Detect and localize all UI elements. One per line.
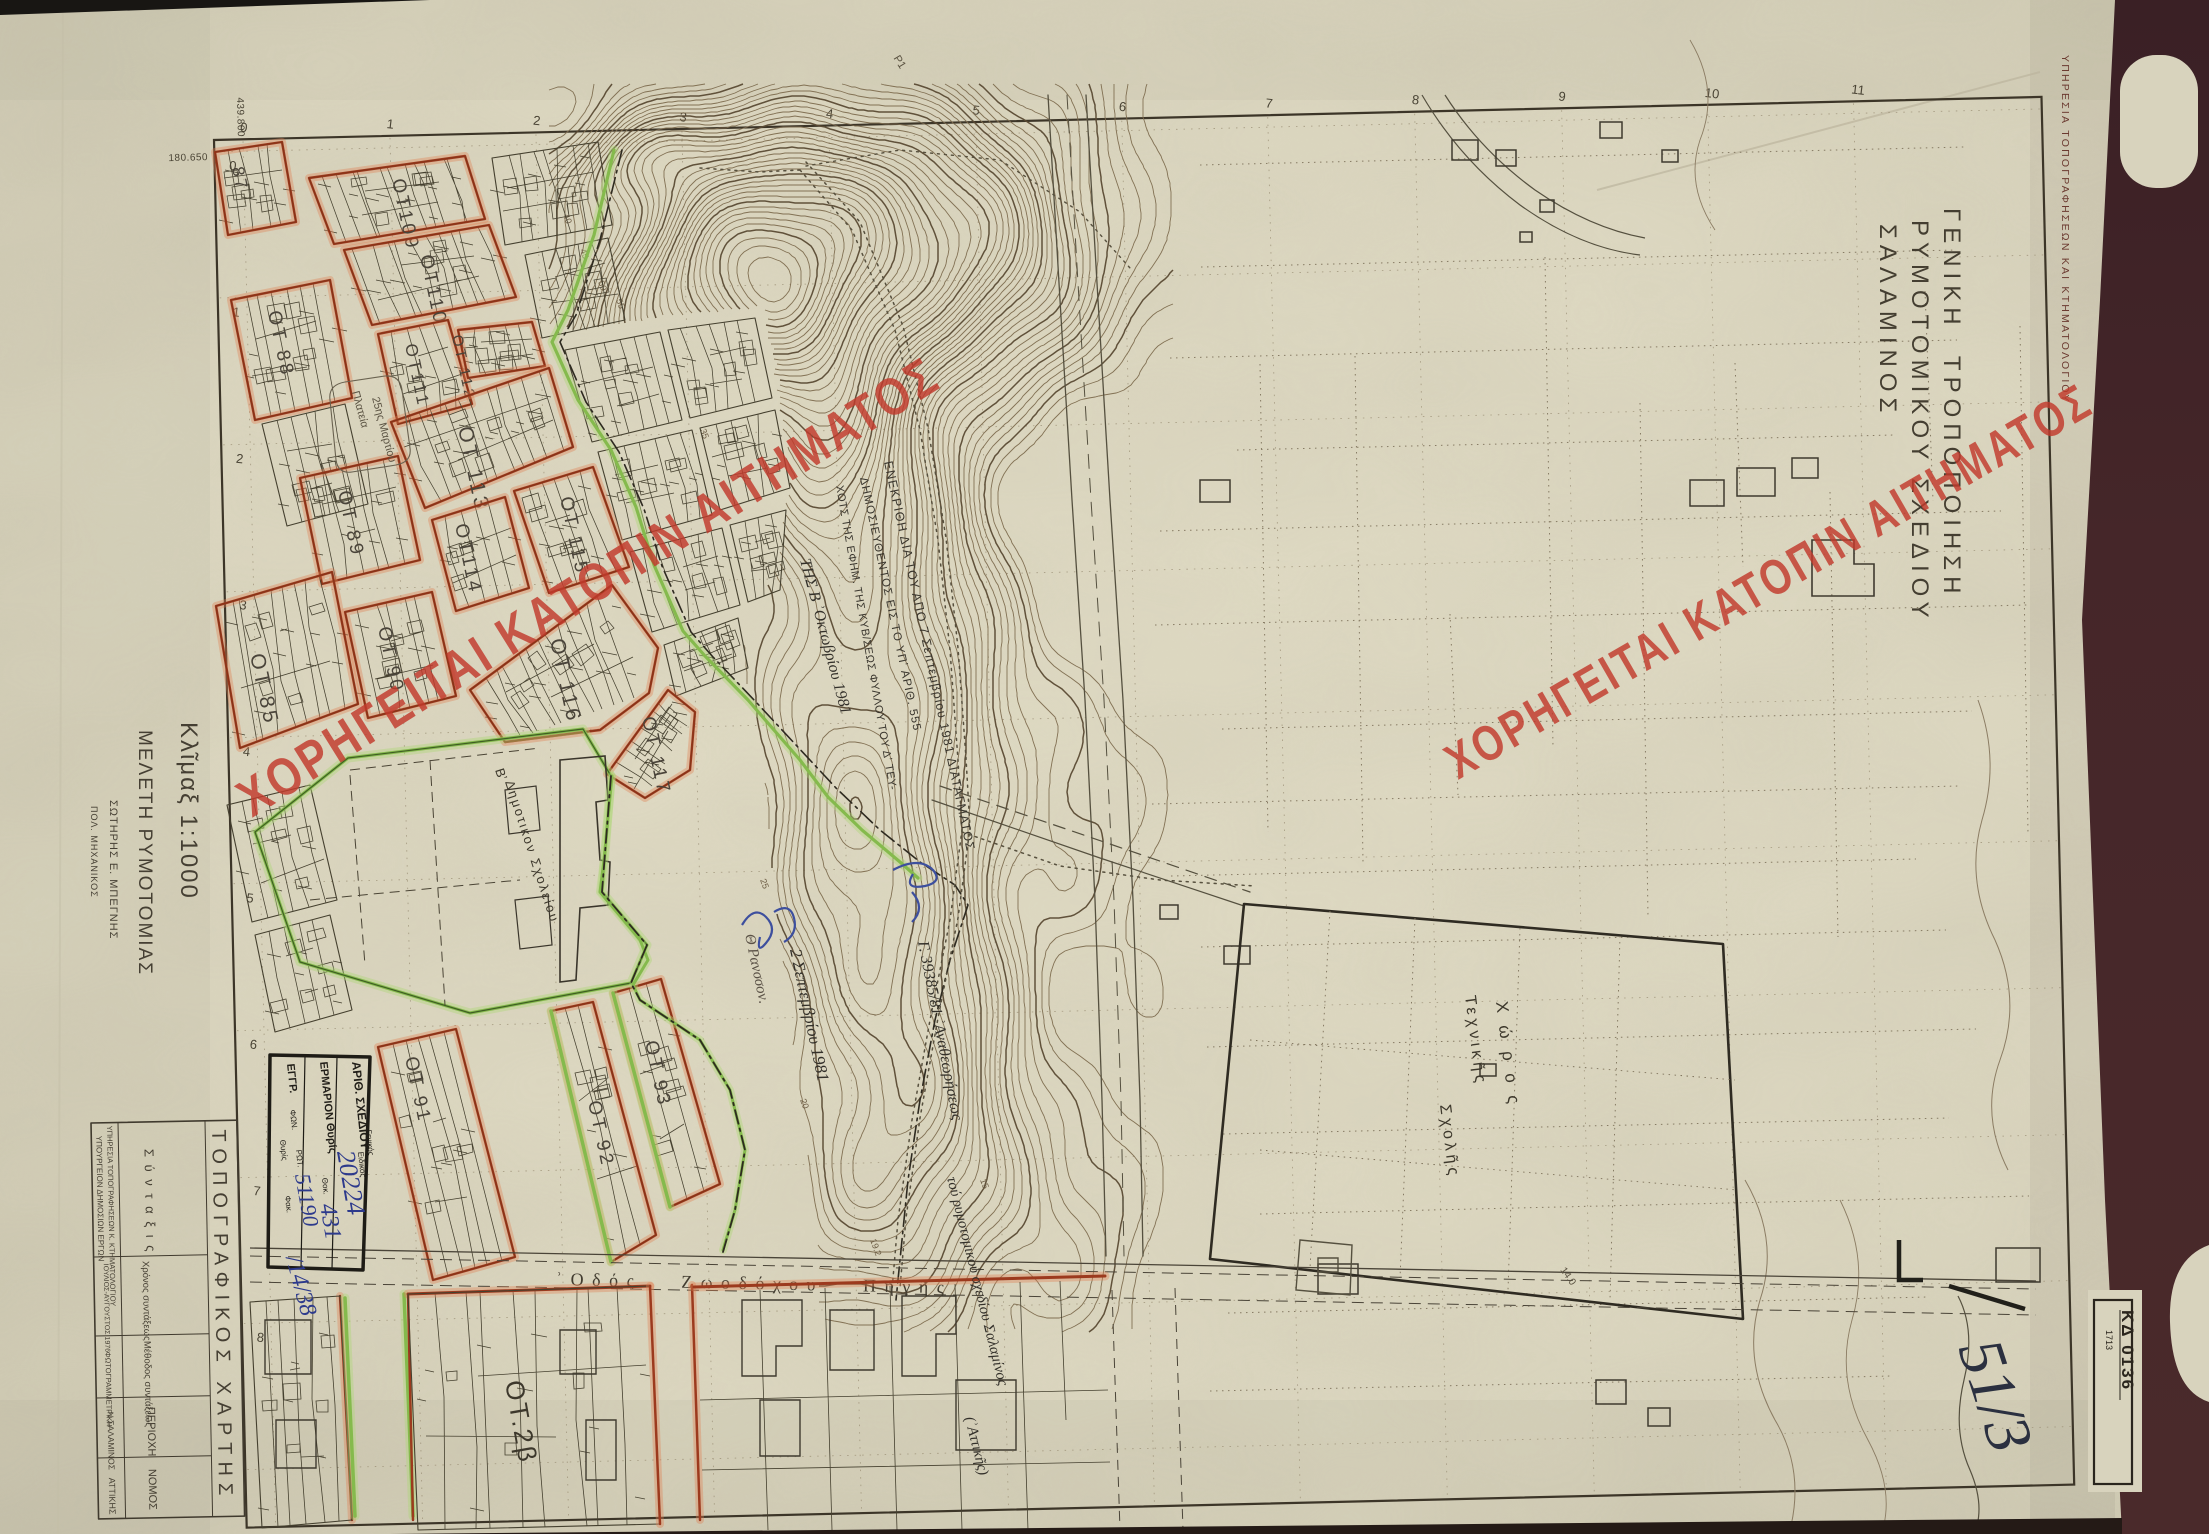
svg-text:ΠΕΡΙΟΧΗ: ΠΕΡΙΟΧΗ: [144, 1407, 157, 1457]
svg-text:ΠΟΛ. ΜΗΧΑΝΙΚΟΣ: ΠΟΛ. ΜΗΧΑΝΙΚΟΣ: [89, 806, 99, 898]
svg-text:ΣΩΤΗΡΗΣ Ε. ΜΠΕΓΝΗΣ: ΣΩΤΗΡΗΣ Ε. ΜΠΕΓΝΗΣ: [107, 800, 119, 939]
svg-text:Χρόνος συντάξεως: Χρόνος συντάξεως: [140, 1261, 153, 1341]
svg-text:ΡΥΜΟΤΟΜΙΚΟΥ ΣΧΕΔΙΟΥ: ΡΥΜΟΤΟΜΙΚΟΥ ΣΧΕΔΙΟΥ: [1906, 220, 1933, 624]
svg-text:Κλῖμαξ 1:1000: Κλῖμαξ 1:1000: [175, 722, 202, 900]
svg-text:11: 11: [1851, 82, 1866, 98]
svg-text:ΡΩΤ.: ΡΩΤ.: [294, 1149, 305, 1167]
svg-text:Θοκ.: Θοκ.: [320, 1177, 331, 1195]
svg-text:ΜΕΛΕΤΗ ΡΥΜΟΤΟΜΙΑΣ: ΜΕΛΕΤΗ ΡΥΜΟΤΟΜΙΑΣ: [134, 730, 155, 976]
svg-text:1713: 1713: [2104, 1330, 2114, 1350]
svg-text:ΝΟΜΟΣ: ΝΟΜΟΣ: [146, 1469, 159, 1510]
svg-text:439.800: 439.800: [234, 97, 246, 137]
svg-text:ΓΕΝΙΚΗ ΤΡΟΠΟΠΟΙΗΣΗ: ΓΕΝΙΚΗ ΤΡΟΠΟΠΟΙΗΣΗ: [1938, 208, 1965, 599]
svg-text:ΥΠΗΡΕΣΙΑ ΤΟΠΟΓΡΑΦΗΣΕΩΝ ΚΑΙ ΚΤΗ: ΥΠΗΡΕΣΙΑ ΤΟΠΟΓΡΑΦΗΣΕΩΝ ΚΑΙ ΚΤΗΜΑΤΟΛΟΓΙΟΥ: [2059, 55, 2071, 404]
svg-text:180.650: 180.650: [168, 152, 208, 164]
svg-text:10: 10: [1704, 85, 1720, 102]
svg-text:Φακ.: Φακ.: [283, 1195, 294, 1213]
svg-text:ΑΤΤΙΚΗΣ: ΑΤΤΙΚΗΣ: [107, 1478, 118, 1516]
svg-text:ΣΑΛΑΜΙΝΟΣ: ΣΑΛΑΜΙΝΟΣ: [1874, 224, 1901, 418]
svg-text:ΚΔ 0136: ΚΔ 0136: [2118, 1310, 2137, 1391]
svg-text:Ν ΣΑΛΑΜΙΝΟΣ: Ν ΣΑΛΑΜΙΝΟΣ: [106, 1412, 117, 1470]
svg-text:Σ ύ ν τ α ξ ι ς: Σ ύ ν τ α ξ ι ς: [142, 1149, 159, 1254]
